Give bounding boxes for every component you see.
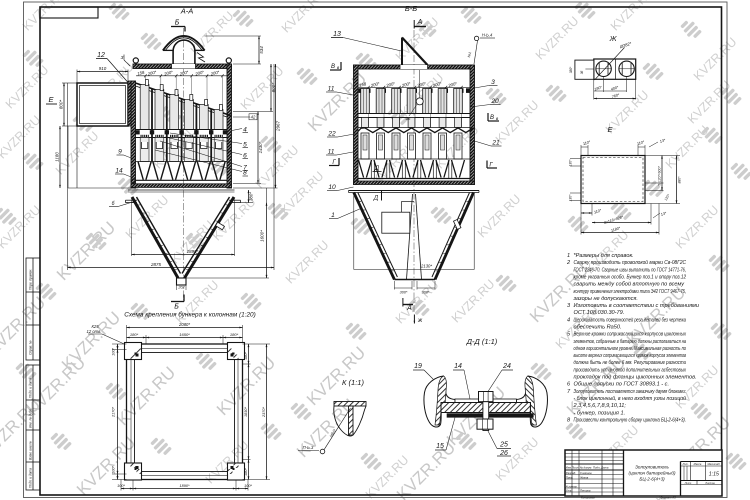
svg-text:Б: Б bbox=[175, 20, 180, 27]
svg-text:100*: 100* bbox=[117, 484, 125, 488]
svg-text:Перв. примен.: Перв. примен. bbox=[29, 269, 33, 290]
svg-text:2967: 2967 bbox=[276, 120, 281, 132]
svg-text:100*: 100* bbox=[112, 466, 116, 474]
svg-text:Д-Д (1:1): Д-Д (1:1) bbox=[466, 337, 498, 346]
svg-text:З: З bbox=[121, 55, 124, 60]
svg-text:одном горизонтальном уровне. М: одном горизонтальном уровне. Максимальна… bbox=[574, 346, 687, 352]
svg-text:5: 5 bbox=[243, 141, 247, 148]
svg-text:910: 910 bbox=[99, 66, 107, 71]
svg-text:зазоры не допускаются.: зазоры не допускаются. bbox=[573, 296, 638, 302]
svg-text:1: 1 bbox=[331, 212, 335, 219]
svg-text:кроме указанных особо. Бункер: кроме указанных особо. Бункер поз.1 и оп… bbox=[574, 274, 687, 280]
svg-text:130*: 130* bbox=[569, 194, 573, 202]
svg-text:Подп. и дата: Подп. и дата bbox=[29, 468, 33, 488]
svg-text:Произвести контрольную сборку: Произвести контрольную сборку циклона БЦ… bbox=[574, 418, 687, 424]
svg-text:2170*: 2170* bbox=[112, 407, 116, 418]
svg-text:Пров.: Пров. bbox=[566, 475, 574, 479]
svg-text:12 отв.: 12 отв. bbox=[87, 329, 102, 334]
svg-text:4: 4 bbox=[243, 126, 247, 133]
svg-text:Масштаб: Масштаб bbox=[707, 462, 720, 466]
svg-text:Золоуловитель: Золоуловитель bbox=[635, 465, 669, 470]
svg-text:Копировал: Копировал bbox=[581, 496, 595, 500]
svg-text:контуру применения электродами: контуру применения электродами типа Э42 … bbox=[574, 289, 687, 295]
svg-text:БЦ-2-6(4+3): БЦ-2-6(4+3) bbox=[639, 477, 665, 482]
svg-text:1890*: 1890* bbox=[187, 249, 199, 254]
svg-text:800*: 800* bbox=[59, 100, 64, 110]
svg-text:25: 25 bbox=[499, 442, 508, 449]
svg-text:- блок циклонный, в него входя: - блок циклонный, в него входят узлы поз… bbox=[574, 395, 687, 402]
svg-text:24: 24 bbox=[502, 363, 511, 370]
svg-text:Ж: Ж bbox=[609, 34, 618, 43]
svg-text:2080*: 2080* bbox=[178, 322, 190, 327]
svg-text:Подп. и дата: Подп. и дата bbox=[29, 378, 33, 398]
svg-text:20: 20 bbox=[490, 98, 499, 105]
svg-text:880*: 880* bbox=[678, 176, 682, 184]
svg-text:Золоуловитель поставляется зак: Золоуловитель поставляется заказчику дву… bbox=[574, 389, 687, 395]
svg-text:обеспечить Ra50.: обеспечить Ra50. bbox=[574, 325, 622, 331]
svg-text:Лит.: Лит. bbox=[681, 462, 688, 466]
svg-text:100*: 100* bbox=[244, 484, 252, 488]
svg-text:Лист: Лист bbox=[684, 481, 693, 485]
svg-text:ГОСТ 2246-70. Сварные швы выпо: ГОСТ 2246-70. Сварные швы выполнить по Г… bbox=[574, 267, 687, 273]
svg-text:2130*: 2130* bbox=[420, 264, 432, 269]
svg-text:Б: Б bbox=[174, 304, 179, 311]
svg-text:22: 22 bbox=[327, 131, 336, 138]
svg-text:180*: 180* bbox=[244, 352, 248, 360]
svg-text:П-Ь.3: П-Ь.3 bbox=[303, 445, 314, 450]
svg-text:Жуков: Жуков bbox=[579, 475, 589, 479]
svg-text:А: А bbox=[406, 305, 412, 312]
svg-text:Н-Ь.4: Н-Ь.4 bbox=[482, 33, 493, 38]
svg-text:Инв. № дубл.: Инв. № дубл. bbox=[29, 408, 33, 428]
svg-text:ж: ж bbox=[417, 318, 423, 324]
svg-text:8: 8 bbox=[243, 170, 247, 177]
svg-text:2370*: 2370* bbox=[262, 407, 266, 418]
svg-text:1: 1 bbox=[567, 253, 570, 259]
svg-text:Верхние кромки соприкасающихся: Верхние кромки соприкасающихся корпусов … bbox=[574, 332, 687, 338]
svg-text:100*: 100* bbox=[112, 348, 116, 356]
svg-text:должна быть не более 6 мм. Рег: должна быть не более 6 мм. Регулирование… bbox=[574, 360, 687, 366]
svg-text:Разраб.: Разраб. bbox=[566, 471, 576, 475]
svg-text:Д: Д bbox=[373, 196, 379, 202]
svg-text:В: В bbox=[490, 115, 494, 121]
svg-text:14: 14 bbox=[454, 363, 462, 370]
svg-text:(циклон батарейный): (циклон батарейный) bbox=[629, 470, 676, 476]
svg-text:6: 6 bbox=[243, 152, 247, 159]
svg-text:5х120*=600*: 5х120*=600* bbox=[658, 166, 662, 186]
svg-text:380*: 380* bbox=[569, 66, 573, 73]
svg-text:36: 36 bbox=[580, 71, 584, 75]
svg-text:Формат А3: Формат А3 bbox=[660, 496, 676, 500]
svg-text:Взам. инв.№: Взам. инв.№ bbox=[29, 441, 33, 460]
svg-text:15: 15 bbox=[436, 443, 444, 450]
svg-text:19: 19 bbox=[414, 363, 422, 370]
svg-text:1600*: 1600* bbox=[260, 230, 265, 242]
svg-text:К (1:1): К (1:1) bbox=[342, 378, 364, 387]
svg-text:Петров: Петров bbox=[580, 488, 591, 492]
svg-text:130*: 130* bbox=[569, 159, 573, 167]
svg-text:2875: 2875 bbox=[150, 262, 162, 267]
svg-text:Общие допуски по ГОСТ 30893.1: Общие допуски по ГОСТ 30893.1 - с. bbox=[574, 382, 670, 388]
svg-text:14: 14 bbox=[115, 168, 123, 175]
svg-text:180*: 180* bbox=[244, 468, 248, 476]
svg-text:4: 4 bbox=[567, 317, 570, 323]
svg-text:21: 21 bbox=[491, 140, 500, 147]
svg-text:1890*: 1890* bbox=[180, 484, 190, 488]
svg-text:9: 9 bbox=[118, 149, 122, 156]
svg-text:300*: 300* bbox=[400, 291, 408, 295]
svg-text:Ø6: Ø6 bbox=[405, 117, 411, 121]
svg-text:- бункер, позиция 1.: - бункер, позиция 1. bbox=[574, 410, 626, 416]
svg-text:Утв.: Утв. bbox=[566, 488, 573, 492]
svg-text:12: 12 bbox=[97, 52, 105, 59]
svg-text:11: 11 bbox=[328, 86, 335, 93]
svg-text:1650*: 1650* bbox=[179, 332, 190, 337]
svg-text:42: 42 bbox=[251, 115, 256, 120]
svg-text:Б-Б: Б-Б bbox=[405, 4, 417, 13]
svg-text:Изготовить в соответствии с тр: Изготовить в соответствии с требованиями bbox=[574, 303, 700, 309]
svg-text:*Размеры для справок.: *Размеры для справок. bbox=[574, 253, 634, 259]
svg-text:элементов, собранные в батарею: элементов, собранные в батарею должны ра… bbox=[574, 339, 687, 345]
svg-text:10: 10 bbox=[328, 184, 336, 191]
svg-text:прокладок под фланцы циклонных: прокладок под фланцы циклонных элементов… bbox=[574, 375, 697, 381]
svg-text:Схема крепления бункера к коло: Схема крепления бункера к колоннам (1:20… bbox=[124, 311, 255, 319]
svg-text:180*: 180* bbox=[230, 332, 239, 337]
svg-text:2,3,4,5,6,7,8,9,10,11;: 2,3,4,5,6,7,8,9,10,11; bbox=[573, 403, 627, 409]
svg-text:А-А: А-А bbox=[180, 7, 194, 16]
svg-text:202: 202 bbox=[177, 286, 185, 290]
svg-text:Шероховатость поверхностей рез: Шероховатость поверхностей реза деталей … bbox=[574, 316, 687, 323]
svg-text:Сварку производить проволокой: Сварку производить проволокой марки Св-0… bbox=[574, 259, 687, 266]
svg-text:1:15: 1:15 bbox=[709, 472, 719, 478]
svg-text:ОСТ 108.030.30-79.: ОСТ 108.030.30-79. bbox=[574, 310, 625, 316]
svg-text:380*: 380* bbox=[249, 192, 254, 201]
svg-text:300*: 300* bbox=[422, 291, 430, 295]
svg-text:сварить между собой вплотную п: сварить между собой вплотную по всему bbox=[574, 281, 686, 288]
svg-text:А: А bbox=[417, 19, 423, 26]
svg-text:180*: 180* bbox=[130, 332, 139, 337]
svg-text:1180: 1180 bbox=[55, 152, 60, 162]
svg-text:11: 11 bbox=[328, 149, 335, 156]
svg-text:Масса: Масса bbox=[694, 462, 702, 466]
svg-text:В: В bbox=[331, 64, 335, 70]
svg-text:3: 3 bbox=[491, 79, 495, 86]
svg-text:Симонов: Симонов bbox=[580, 471, 592, 475]
svg-text:Изм Лист № докум. Подп. Дата: Изм Лист № докум. Подп. Дата bbox=[566, 466, 609, 470]
svg-text:производить установкой дополни: производить установкой дополнительных ас… bbox=[574, 366, 687, 373]
svg-text:б: б bbox=[112, 201, 115, 207]
svg-text:13: 13 bbox=[333, 31, 341, 38]
svg-text:высоте верхних соприкасающихся: высоте верхних соприкасающихся кромок ко… bbox=[574, 353, 687, 359]
svg-text:1430*: 1430* bbox=[258, 141, 263, 153]
svg-text:Листов: Листов bbox=[704, 481, 715, 485]
svg-text:534: 534 bbox=[259, 46, 264, 54]
svg-text:1830*: 1830* bbox=[244, 407, 248, 417]
svg-text:Справ. №: Справ. № bbox=[29, 340, 33, 355]
